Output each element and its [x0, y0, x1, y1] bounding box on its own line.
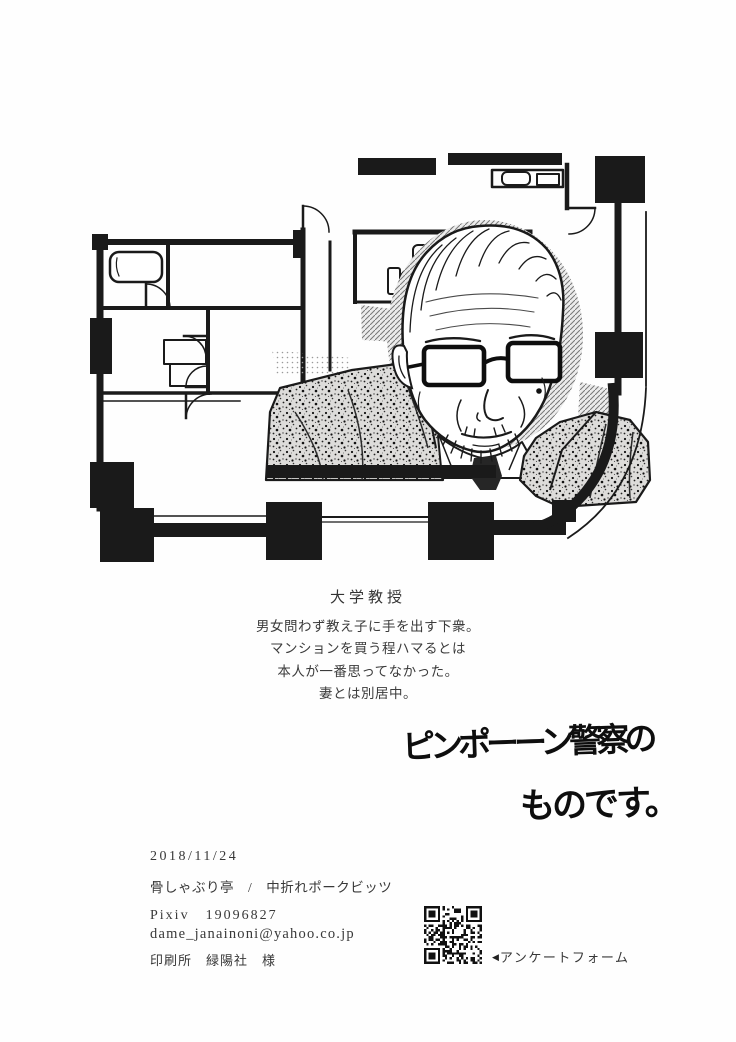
- circle-and-author: 骨しゃぶり亭 / 中折れポークビッツ: [150, 876, 392, 896]
- publication-date: 2018/11/24: [150, 849, 238, 865]
- character-bio: 男女問わず教え子に手を出す下衆。 マンションを買う程ハマるとは 本人が一番思って…: [158, 616, 578, 705]
- qr-caption: ◀アンケートフォーム: [492, 947, 630, 966]
- qr-caption-label: アンケートフォーム: [500, 950, 630, 965]
- handwritten-note-line2: ものです。: [519, 774, 677, 829]
- pixiv-id: Pixiv 19096827: [150, 904, 278, 924]
- bio-line: 本人が一番思ってなかった。: [158, 661, 578, 683]
- handwritten-note-line1: ピンポーーン警察の: [401, 712, 653, 769]
- doujinshi-colophon-page: 大学教授 男女問わず教え子に手を出す下衆。 マンションを買う程ハマるとは 本人が…: [0, 0, 736, 1042]
- colophon: 2018/11/24 骨しゃぶり亭 / 中折れポークビッツ Pixiv 1909…: [150, 849, 470, 979]
- left-arrow-icon: ◀: [492, 953, 499, 963]
- printer-credit: 印刷所 緑陽社 様: [150, 950, 276, 969]
- contact-email: dame_janainoni@yahoo.co.jp: [150, 926, 355, 943]
- character-title: 大学教授: [178, 586, 558, 607]
- bio-line: 男女問わず教え子に手を出す下衆。: [158, 616, 578, 638]
- bio-line: 妻とは別居中。: [158, 683, 578, 705]
- floorplan-portrait-illustration: [90, 150, 660, 570]
- bio-line: マンションを買う程ハマるとは: [158, 638, 578, 660]
- qr-code: [424, 906, 482, 964]
